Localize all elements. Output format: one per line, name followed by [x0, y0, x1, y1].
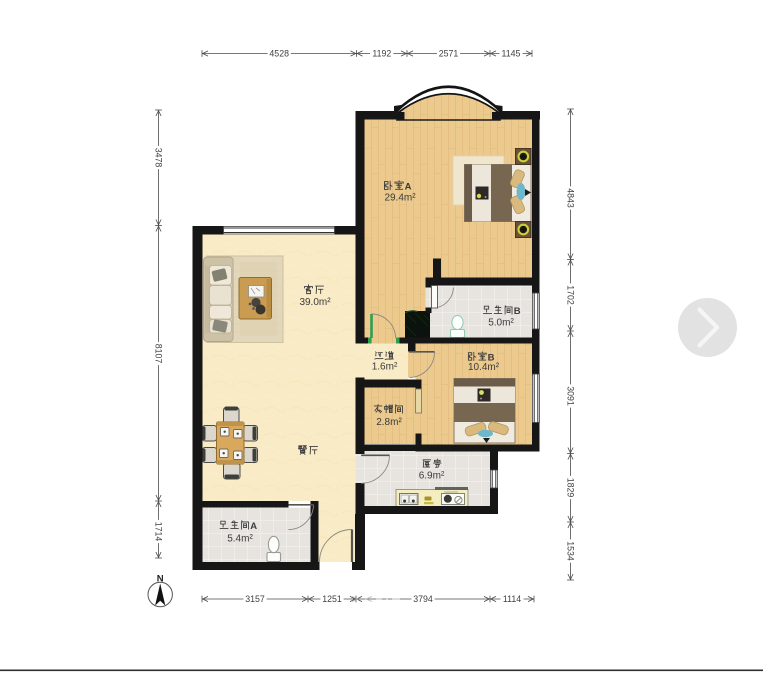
svg-text:6.9m²: 6.9m² [419, 471, 445, 482]
svg-text:A: A [250, 521, 257, 532]
svg-text:B: B [514, 306, 521, 317]
svg-text:1702: 1702 [565, 285, 575, 305]
svg-text:1251: 1251 [322, 594, 342, 604]
svg-text:3478: 3478 [153, 148, 163, 168]
svg-text:29.4m²: 29.4m² [384, 193, 416, 204]
svg-text:4528: 4528 [269, 49, 289, 59]
svg-text:3091: 3091 [565, 386, 575, 406]
svg-text:3794: 3794 [413, 594, 433, 604]
svg-text:8107: 8107 [153, 344, 163, 364]
svg-text:1.6m²: 1.6m² [372, 362, 398, 373]
svg-text:N: N [157, 574, 164, 585]
svg-text:1714: 1714 [153, 522, 163, 542]
svg-text:39.0m²: 39.0m² [299, 297, 331, 308]
svg-text:2571: 2571 [439, 49, 459, 59]
svg-text:5.0m²: 5.0m² [488, 318, 514, 329]
svg-text:2.8m²: 2.8m² [376, 417, 402, 428]
svg-text:1114: 1114 [503, 594, 521, 604]
svg-text:3157: 3157 [245, 594, 265, 604]
svg-text:1534: 1534 [565, 541, 575, 561]
svg-text:1145: 1145 [502, 49, 521, 59]
svg-text:A: A [405, 182, 412, 193]
svg-text:10.4m²: 10.4m² [468, 362, 500, 373]
svg-text:5.4m²: 5.4m² [227, 534, 253, 545]
svg-text:1829: 1829 [565, 478, 575, 498]
svg-text:1192: 1192 [372, 49, 391, 59]
svg-text:4843: 4843 [565, 188, 575, 208]
